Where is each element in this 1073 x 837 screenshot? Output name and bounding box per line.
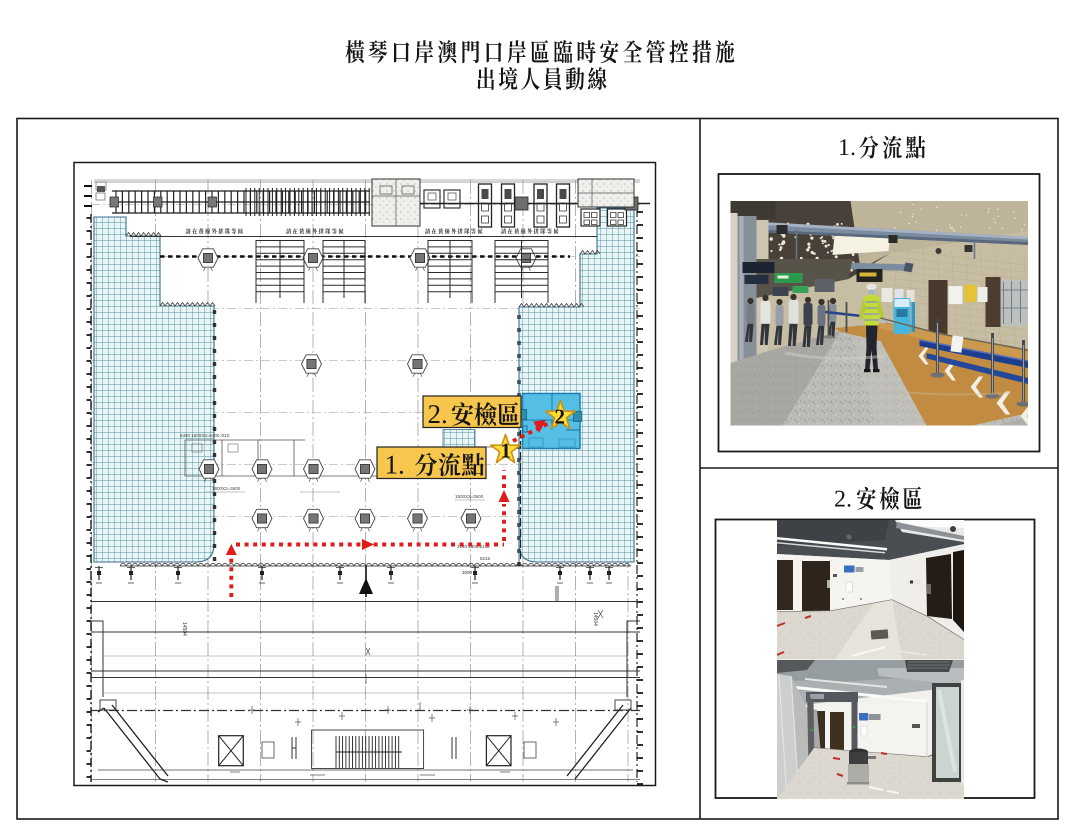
svg-text:14504: 14504 [181,622,187,636]
svg-text:5215: 5215 [480,556,491,561]
svg-text:1500X2=3600: 1500X2=3600 [455,494,484,499]
svg-text:1800X2=3600: 1800X2=3600 [212,486,241,491]
svg-text:3000: 3000 [462,570,473,575]
svg-text:6450 1600X3=5400 /210: 6450 1600X3=5400 /210 [180,433,230,438]
svg-text:14504: 14504 [592,612,598,626]
